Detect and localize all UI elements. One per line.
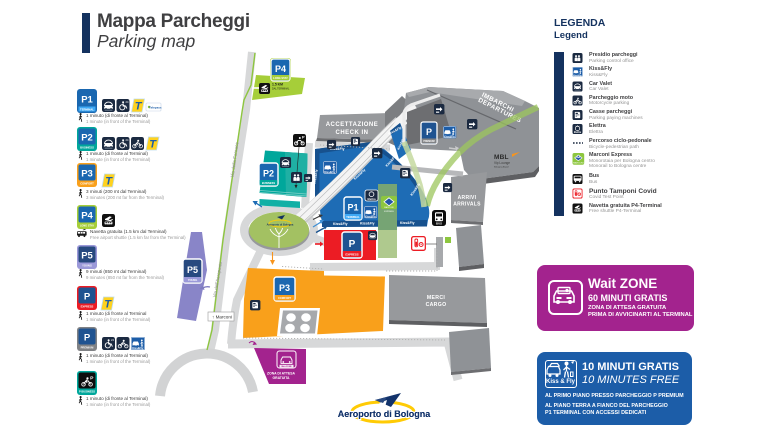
svg-text:P2: P2 [81, 133, 93, 144]
svg-text:YOUNG: YOUNG [82, 263, 92, 267]
svg-text:P BUSINESS: P BUSINESS [79, 389, 95, 393]
svg-text:LONG STAY: LONG STAY [80, 224, 95, 227]
svg-text:PREMIUM: PREMIUM [81, 345, 94, 349]
svg-text:P1: P1 [81, 95, 93, 106]
svg-text:P3: P3 [81, 169, 93, 180]
svg-text:P: P [84, 292, 91, 303]
svg-text:P4: P4 [81, 211, 93, 222]
svg-text:BUSINESS: BUSINESS [80, 145, 94, 149]
svg-text:EXPRESS: EXPRESS [81, 304, 94, 308]
svg-text:TERMINAL: TERMINAL [80, 107, 94, 111]
svg-text:COMFORT: COMFORT [80, 181, 94, 185]
svg-text:P5: P5 [81, 251, 93, 262]
svg-text:P: P [84, 333, 91, 344]
